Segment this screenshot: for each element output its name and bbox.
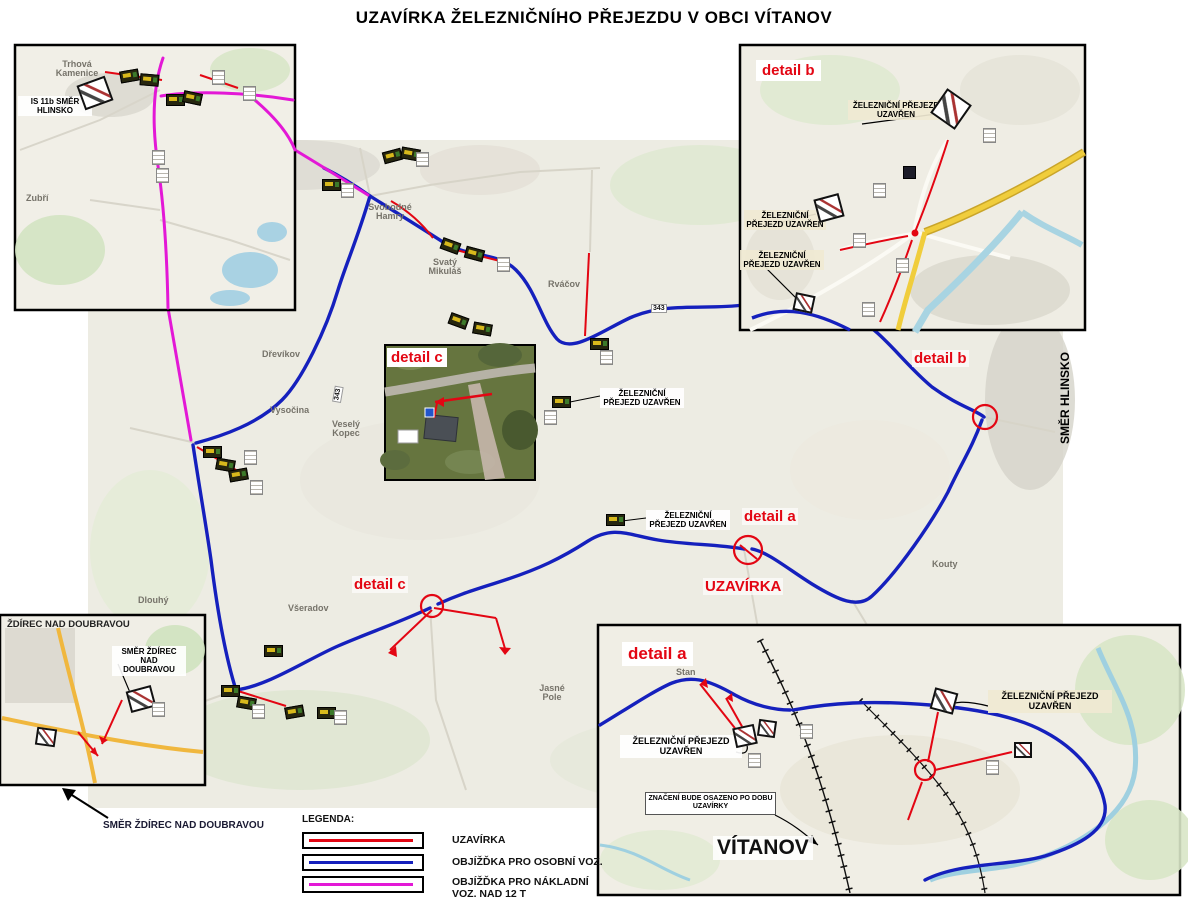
place-label: Kouty <box>932 560 958 569</box>
bottom-left-inset-heading: ŽDÍREC NAD DOUBRAVOU <box>7 619 130 630</box>
callout-label: SMĚR ŽDÍREC NAD DOUBRAVOU <box>112 646 186 676</box>
mini-sign-plate-icon <box>152 150 165 165</box>
place-label: Vysočina <box>270 406 309 415</box>
place-label: Dřevíkov <box>262 350 300 359</box>
mini-sign-plate-icon <box>862 302 875 317</box>
detail-b-inset-heading: detail b <box>756 60 821 81</box>
mini-sign-plate-icon <box>250 480 263 495</box>
detour-sign-icon <box>140 73 160 87</box>
traffic-sign-plate-icon <box>1014 742 1032 758</box>
mini-sign-plate-icon <box>341 183 354 198</box>
place-label: Zubří <box>26 194 49 203</box>
traffic-sign-plate-icon <box>35 727 57 748</box>
mini-sign-plate-icon <box>873 183 886 198</box>
legend-item-label: OBJÍŽĎKA PRO NÁKLADNÍ VOZ. NAD 12 T <box>452 876 602 900</box>
mini-sign-plate-icon <box>416 152 429 167</box>
mini-sign-plate-icon <box>748 753 761 768</box>
mini-sign-plate-icon <box>244 450 257 465</box>
inset-detail-b-graphics <box>740 45 1085 332</box>
place-label: Svatý Mikuláš <box>420 258 470 277</box>
legend-swatch-closure <box>302 832 424 849</box>
note-label: ZNAČENÍ BUDE OSAZENO PO DOBU UZAVÍRKY <box>645 792 776 815</box>
detour-sign-icon <box>264 645 283 657</box>
mini-sign-plate-icon <box>983 128 996 143</box>
traffic-sign-plate-icon <box>757 719 777 738</box>
place-label: Jasné Pole <box>532 684 572 703</box>
direction-zdirec-caption: SMĚR ŽDÍREC NAD DOUBRAVOU <box>103 820 264 831</box>
callout-label: ŽELEZNIČNÍ PŘEJEZD UZAVŘEN <box>620 735 742 758</box>
mini-sign-plate-icon <box>497 257 510 272</box>
detail-a-marker-label: detail a <box>742 508 798 525</box>
map-canvas <box>0 0 1188 904</box>
detour-sign-icon <box>590 338 609 350</box>
place-label: Svobodné Hamry <box>362 203 418 222</box>
black-square-sign-icon <box>903 166 916 179</box>
mini-sign-plate-icon <box>896 258 909 273</box>
place-label: Stan <box>676 668 696 677</box>
legend-heading: LEGENDA: <box>302 814 354 825</box>
traffic-sign-plate-icon <box>792 292 815 314</box>
road-number-plate: 343 <box>651 304 667 313</box>
detour-sign-icon <box>322 179 341 191</box>
callout-label: ŽELEZNIČNÍ PŘEJEZD UZAVŘEN <box>600 388 684 408</box>
place-label: Rváčov <box>548 280 580 289</box>
detour-sign-icon <box>552 396 571 408</box>
detour-sign-icon <box>203 446 222 458</box>
mini-sign-plate-icon <box>334 710 347 725</box>
mini-sign-plate-icon <box>156 168 169 183</box>
place-label: Veselý Kopec <box>325 420 367 439</box>
detail-a-inset-heading: detail a <box>622 642 693 666</box>
page-title: UZAVÍRKA ŽELEZNIČNÍHO PŘEJEZDU V OBCI VÍ… <box>0 8 1188 28</box>
mini-sign-plate-icon <box>853 233 866 248</box>
callout-label: ŽELEZNIČNÍ PŘEJEZD UZAVŘEN <box>744 210 826 230</box>
closure-map-page: UZAVÍRKA ŽELEZNIČNÍHO PŘEJEZDU V OBCI VÍ… <box>0 0 1188 904</box>
place-label: Dlouhý <box>138 596 169 605</box>
mini-sign-plate-icon <box>800 724 813 739</box>
callout-label: ŽELEZNIČNÍ PŘEJEZD UZAVŘEN <box>740 250 824 270</box>
mini-sign-plate-icon <box>986 760 999 775</box>
detail-c-inset-heading: detail c <box>387 348 447 367</box>
legend-swatch-car-detour <box>302 854 424 871</box>
closure-marker-label: UZAVÍRKA <box>703 578 783 595</box>
callout-label: ŽELEZNIČNÍ PŘEJEZD UZAVŘEN <box>988 690 1112 713</box>
mini-sign-plate-icon <box>252 704 265 719</box>
callout-label: ŽELEZNIČNÍ PŘEJEZD UZAVŘEN <box>848 100 944 120</box>
town-label: VÍTANOV <box>713 836 813 860</box>
legend-swatch-truck-detour <box>302 876 424 893</box>
legend-item-label: OBJÍŽĎKA PRO OSOBNÍ VOZ. <box>452 856 603 868</box>
direction-hlinsko-label: SMĚR HLINSKO <box>1058 348 1072 448</box>
mini-sign-plate-icon <box>212 70 225 85</box>
callout-label: ŽELEZNIČNÍ PŘEJEZD UZAVŘEN <box>646 510 730 530</box>
mini-sign-plate-icon <box>243 86 256 101</box>
legend-item-label: UZAVÍRKA <box>452 834 505 846</box>
place-label: Všeradov <box>288 604 329 613</box>
place-label: Trhová Kamenice <box>46 60 108 79</box>
mini-sign-plate-icon <box>152 702 165 717</box>
detail-c-marker-label: detail c <box>352 576 408 593</box>
detour-sign-icon <box>606 514 625 526</box>
mini-sign-plate-icon <box>544 410 557 425</box>
mini-sign-plate-icon <box>600 350 613 365</box>
detail-b-marker-label: detail b <box>912 350 969 367</box>
